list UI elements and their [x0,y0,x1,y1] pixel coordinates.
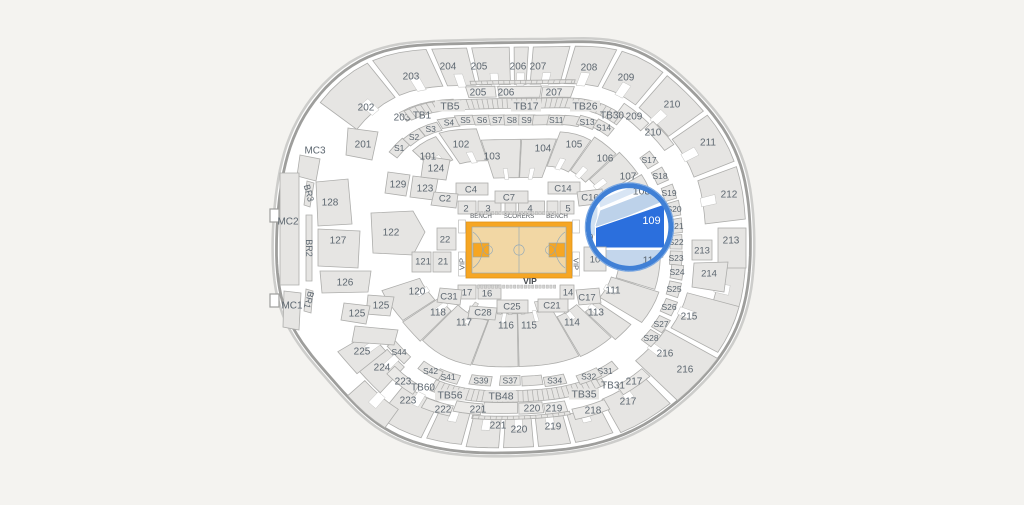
svg-text:C31: C31 [440,291,457,302]
svg-text:205: 205 [471,62,488,73]
svg-text:223: 223 [400,396,417,407]
svg-text:116: 116 [498,321,514,332]
svg-text:VIP: VIP [571,258,580,270]
svg-text:S3: S3 [425,124,436,134]
svg-text:203: 203 [403,72,420,83]
svg-text:205: 205 [470,88,487,99]
svg-text:215: 215 [681,312,698,323]
svg-text:S32: S32 [581,371,596,381]
svg-text:S7: S7 [492,115,503,125]
svg-text:104: 104 [535,144,552,155]
svg-text:223: 223 [395,377,412,388]
svg-text:129: 129 [390,180,407,191]
svg-text:S19: S19 [661,188,676,198]
svg-text:216: 216 [657,349,674,360]
svg-text:TB48: TB48 [488,391,513,403]
svg-text:209: 209 [618,73,635,84]
svg-text:S5: S5 [460,115,471,125]
svg-text:220: 220 [511,425,528,436]
svg-text:17: 17 [462,287,473,298]
svg-text:221: 221 [490,421,507,432]
svg-text:C17: C17 [578,292,595,303]
svg-text:221: 221 [470,405,487,416]
svg-text:S9: S9 [521,115,532,125]
svg-text:14: 14 [563,287,574,298]
svg-text:MC2: MC2 [277,217,299,228]
svg-text:S37: S37 [503,376,518,386]
svg-text:220: 220 [524,404,541,415]
svg-text:114: 114 [564,318,580,329]
svg-text:103: 103 [484,152,501,163]
svg-text:201: 201 [355,140,372,151]
svg-text:TB26: TB26 [572,101,597,113]
svg-text:216: 216 [677,365,694,376]
svg-text:113: 113 [588,308,604,319]
svg-text:212: 212 [721,190,738,201]
svg-text:S24: S24 [669,267,684,277]
svg-text:206: 206 [498,88,515,99]
svg-text:S26: S26 [661,302,676,312]
svg-text:118: 118 [430,308,446,319]
svg-text:C25: C25 [503,301,520,312]
svg-text:TB30: TB30 [600,111,624,122]
svg-text:S1: S1 [394,143,405,153]
svg-text:S6: S6 [477,115,488,125]
svg-text:S42: S42 [423,366,438,376]
svg-text:C21: C21 [543,300,560,311]
svg-text:225: 225 [354,347,371,358]
svg-text:206: 206 [510,62,527,73]
svg-text:107: 107 [620,172,637,183]
svg-text:123: 123 [417,184,434,195]
svg-text:127: 127 [330,236,347,247]
svg-text:209: 209 [626,112,643,123]
svg-text:VIP: VIP [458,258,467,270]
svg-text:120: 120 [409,287,426,298]
svg-text:16: 16 [482,288,493,299]
svg-text:122: 122 [383,228,400,239]
svg-text:207: 207 [546,88,563,99]
svg-text:MC3: MC3 [304,146,326,157]
svg-text:C14: C14 [554,183,571,194]
svg-text:210: 210 [645,128,662,139]
svg-text:S11: S11 [549,115,564,125]
svg-text:TB5: TB5 [440,101,459,113]
svg-text:218: 218 [585,406,602,417]
svg-text:S34: S34 [547,376,562,386]
svg-text:211: 211 [700,138,716,149]
svg-text:207: 207 [530,62,547,73]
svg-text:C7: C7 [503,192,515,203]
svg-text:210: 210 [664,100,681,111]
svg-text:111: 111 [605,286,621,297]
svg-text:TB35: TB35 [571,389,596,401]
svg-text:224: 224 [374,363,391,374]
svg-text:S25: S25 [666,284,681,294]
svg-text:S18: S18 [652,171,667,181]
svg-text:217: 217 [626,377,643,388]
svg-text:TB56: TB56 [437,390,462,402]
svg-text:S41: S41 [440,372,455,382]
svg-text:128: 128 [322,198,339,209]
svg-text:214: 214 [701,268,717,279]
svg-text:C28: C28 [474,307,491,318]
svg-text:124: 124 [428,164,445,175]
svg-text:213: 213 [694,245,710,256]
svg-text:115: 115 [521,321,537,332]
svg-text:102: 102 [453,140,470,151]
svg-text:MC1: MC1 [281,301,303,312]
svg-text:213: 213 [723,236,740,247]
svg-text:S39: S39 [473,376,488,386]
svg-text:C2: C2 [439,193,451,204]
svg-text:219: 219 [545,422,562,433]
svg-text:208: 208 [581,63,598,74]
svg-text:125: 125 [373,301,390,312]
svg-text:S2: S2 [409,132,420,142]
svg-text:TB31: TB31 [601,381,625,392]
svg-text:106: 106 [597,154,614,165]
svg-text:S14: S14 [596,122,611,132]
svg-text:TB60: TB60 [411,383,435,394]
svg-text:TB17: TB17 [513,101,538,113]
svg-text:C4: C4 [465,184,477,195]
svg-text:117: 117 [456,318,472,329]
svg-text:125: 125 [349,309,366,320]
svg-text:S28: S28 [643,333,658,343]
svg-text:204: 204 [440,62,457,73]
svg-text:BENCH: BENCH [546,213,568,220]
svg-text:TB1: TB1 [413,111,432,122]
svg-text:S44: S44 [391,347,406,357]
svg-text:S8: S8 [507,115,518,125]
svg-text:202: 202 [358,103,375,114]
svg-text:S23: S23 [668,253,683,263]
svg-text:121: 121 [415,256,431,267]
svg-text:VIP: VIP [523,276,537,286]
svg-text:S17: S17 [641,155,656,165]
svg-text:S27: S27 [653,319,668,329]
svg-text:22: 22 [440,234,451,245]
svg-text:S4: S4 [444,118,455,128]
svg-text:222: 222 [435,405,452,416]
svg-text:126: 126 [337,278,354,289]
svg-text:21: 21 [438,256,449,267]
svg-text:109: 109 [642,215,660,227]
svg-text:BR2: BR2 [304,239,314,257]
svg-text:S13: S13 [579,117,594,127]
svg-text:105: 105 [566,140,583,151]
svg-text:217: 217 [620,397,637,408]
svg-text:101: 101 [420,152,437,163]
svg-text:2: 2 [463,203,468,214]
